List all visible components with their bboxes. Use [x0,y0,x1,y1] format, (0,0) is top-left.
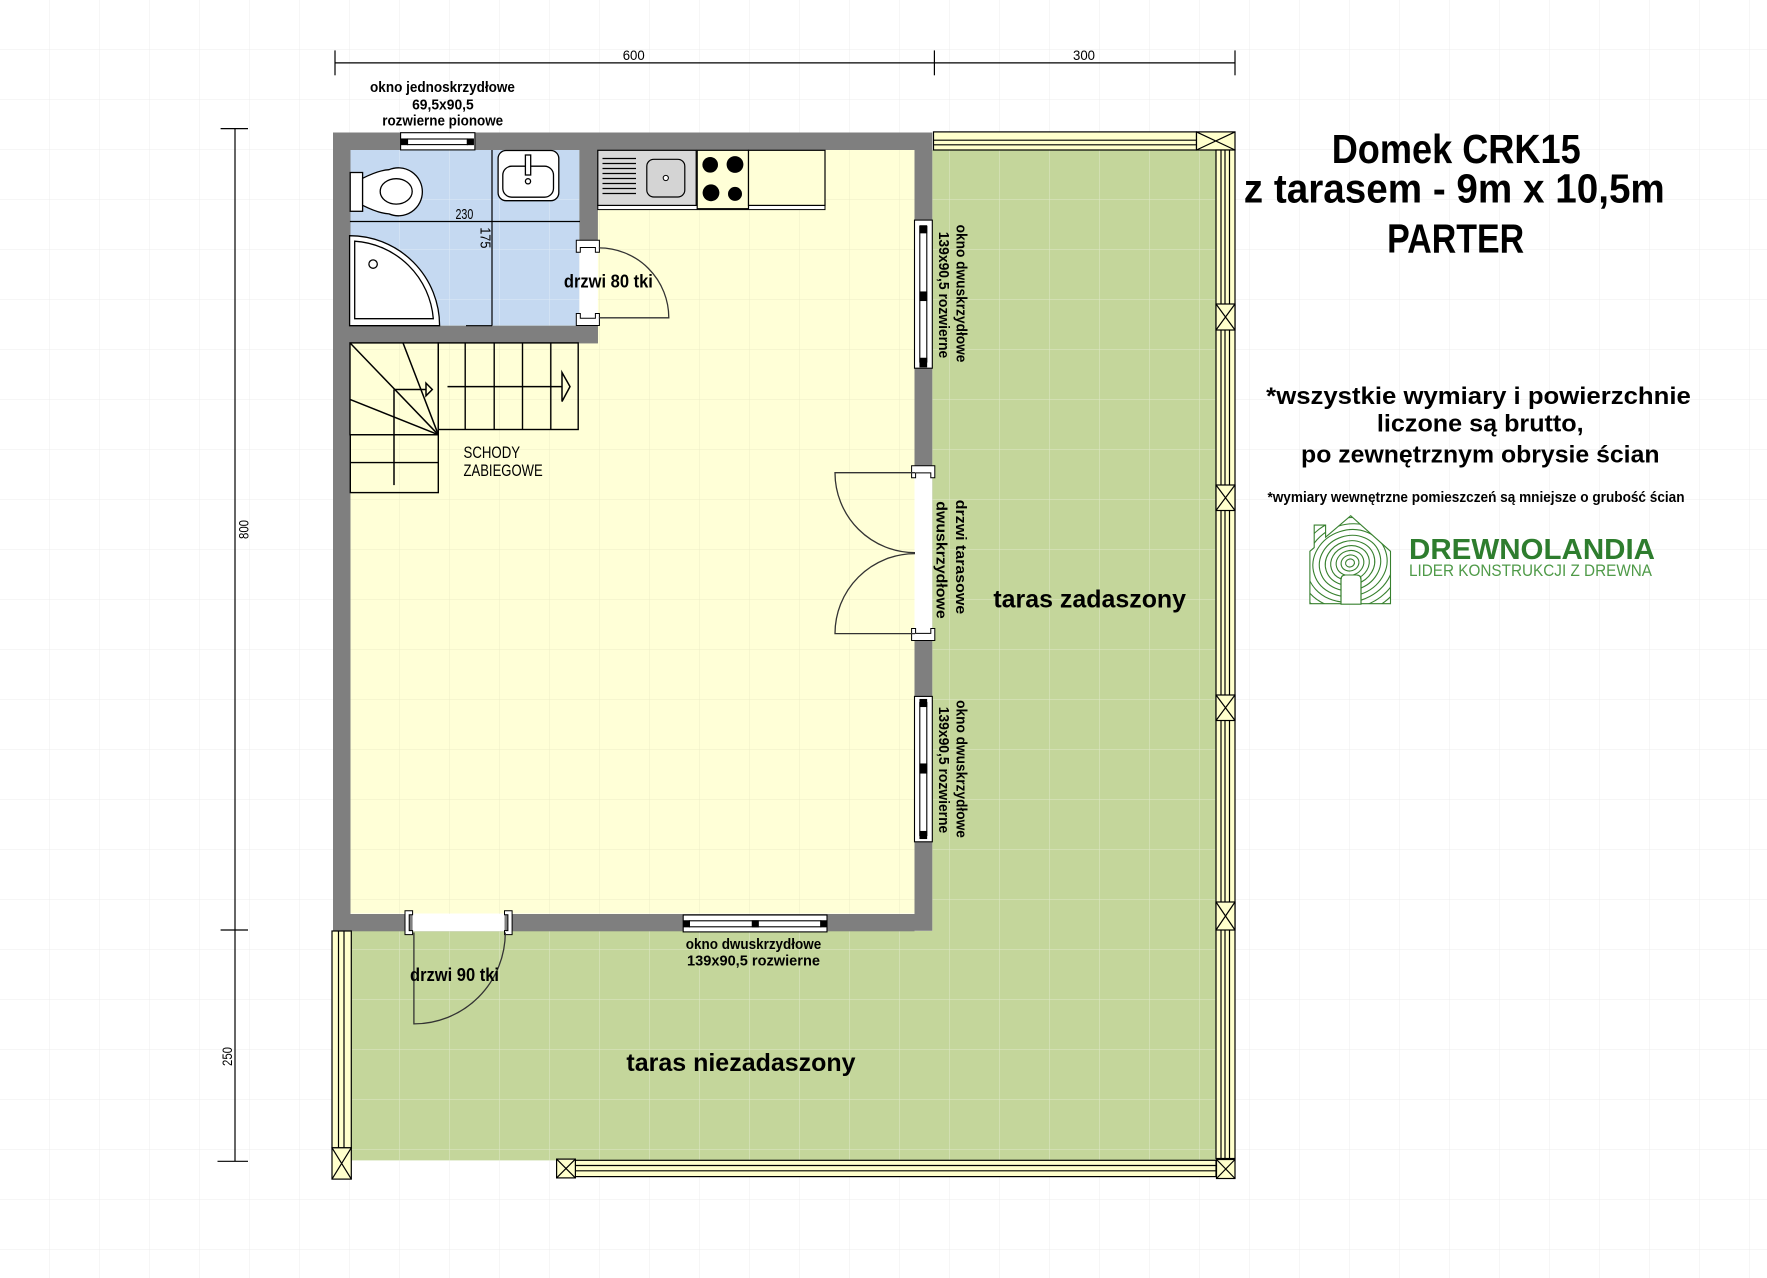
svg-text:*wymiary wewnętrzne pomieszcze: *wymiary wewnętrzne pomieszczeń są mniej… [1267,490,1684,506]
svg-text:*wszystkie wymiary i powierzch: *wszystkie wymiary i powierzchnie [1266,383,1691,410]
svg-text:LIDER KONSTRUKCJI Z DREWNA: LIDER KONSTRUKCJI Z DREWNA [1409,562,1652,580]
svg-text:139x90,5 rozwierne: 139x90,5 rozwierne [935,707,952,834]
svg-text:600: 600 [623,47,645,63]
svg-text:taras zadaszony: taras zadaszony [993,586,1186,614]
svg-text:139x90,5 rozwierne: 139x90,5 rozwierne [687,953,820,970]
svg-text:ZABIEGOWE: ZABIEGOWE [464,461,543,480]
svg-text:okno dwuskrzydłowe: okno dwuskrzydłowe [953,225,970,363]
svg-text:okno jednoskrzydłowe: okno jednoskrzydłowe [370,79,515,96]
svg-text:okno dwuskrzydłowe: okno dwuskrzydłowe [686,936,821,953]
svg-text:liczone są brutto,: liczone są brutto, [1377,411,1584,438]
svg-text:800: 800 [237,520,252,539]
svg-text:taras niezadaszony: taras niezadaszony [626,1049,855,1077]
svg-text:300: 300 [1073,47,1095,63]
svg-text:230: 230 [456,206,474,223]
svg-text:69,5x90,5: 69,5x90,5 [412,96,474,113]
svg-text:drzwi 80 tki: drzwi 80 tki [564,272,653,292]
svg-text:PARTER: PARTER [1387,215,1524,261]
svg-text:dwuskrzydłowe: dwuskrzydłowe [933,501,950,618]
svg-text:drzwi tarasowe: drzwi tarasowe [952,500,969,614]
svg-text:SCHODY: SCHODY [464,443,521,462]
svg-text:drzwi 90 tki: drzwi 90 tki [410,965,499,985]
svg-text:okno dwuskrzydłowe: okno dwuskrzydłowe [953,700,970,838]
svg-text:250: 250 [220,1047,235,1066]
svg-text:139x90,5 rozwierne: 139x90,5 rozwierne [935,232,952,359]
svg-text:rozwierne pionowe: rozwierne pionowe [382,112,503,129]
svg-text:175: 175 [477,227,494,248]
svg-text:z tarasem - 9m x 10,5m: z tarasem - 9m x 10,5m [1244,166,1665,212]
svg-text:po zewnętrznym obrysie ścian: po zewnętrznym obrysie ścian [1301,442,1660,469]
